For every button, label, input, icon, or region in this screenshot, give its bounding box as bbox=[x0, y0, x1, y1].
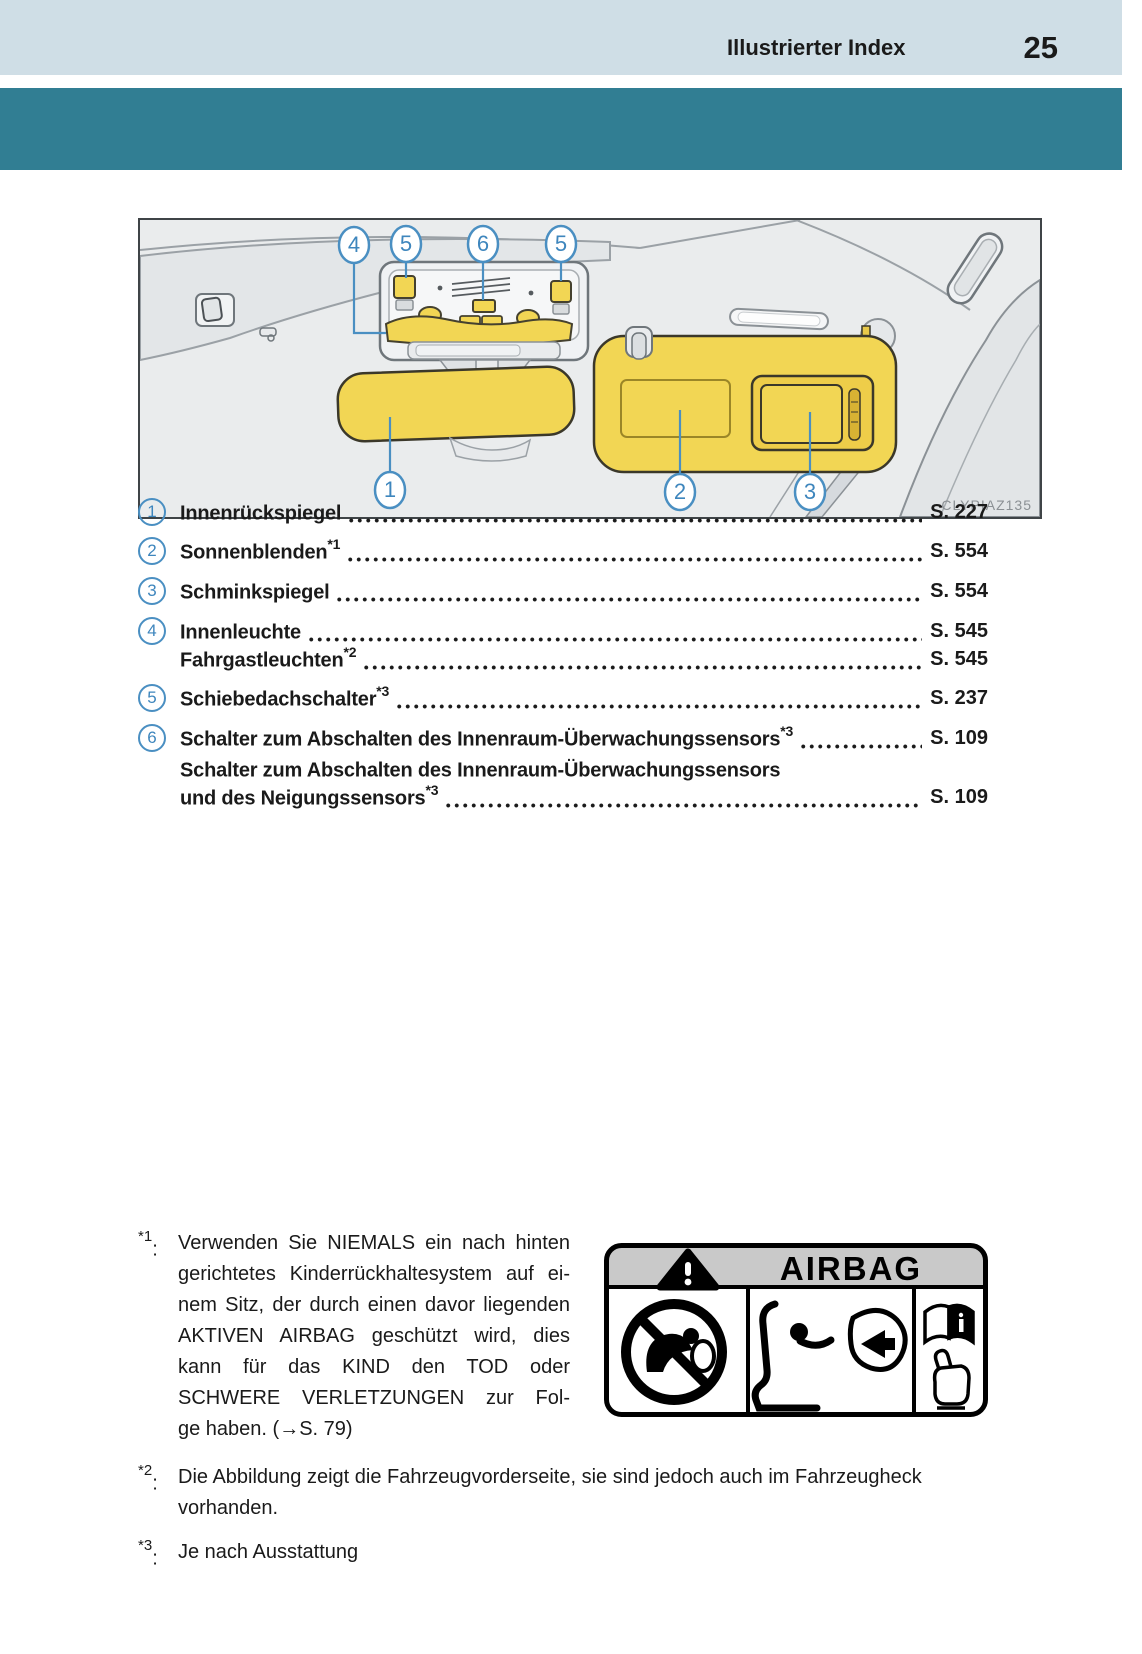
page-header: Illustrierter Index 25 bbox=[0, 0, 1122, 75]
console-dot bbox=[438, 286, 443, 291]
item-label: Fahrgastleuchten*2 bbox=[180, 646, 356, 673]
footnote-1: *1: Verwenden Sie NIEMALS ein nach hinte… bbox=[138, 1228, 1138, 1445]
switch-slot bbox=[553, 304, 569, 314]
visor-clip bbox=[626, 327, 652, 359]
callout-badge: 2 bbox=[138, 537, 166, 565]
footnotes-section: *1: Verwenden Sie NIEMALS ein nach hinte… bbox=[138, 1228, 1138, 1575]
page-ref: S. 237 bbox=[930, 687, 988, 710]
footnote-3: *3: Je nach Ausstattung bbox=[138, 1537, 1138, 1575]
footnote-ref: *1 bbox=[327, 536, 340, 552]
index-row: 3 Schminkspiegel S. 554 bbox=[138, 577, 988, 605]
footnote-1-line: Verwenden Sie NIEMALS ein nach hinten bbox=[178, 1228, 570, 1259]
leader-dots bbox=[799, 728, 922, 749]
callout-5a: 5 bbox=[400, 231, 412, 256]
vanity-cover-slider bbox=[849, 389, 860, 440]
page-ref: S. 227 bbox=[930, 501, 988, 524]
console-tray-door bbox=[416, 345, 520, 356]
index-row: 2 Sonnenblenden*1 S. 554 bbox=[138, 537, 988, 565]
page-ref: S. 545 bbox=[930, 648, 988, 671]
footnote-3-marker: *3: bbox=[138, 1537, 178, 1575]
footnote-1-marker: *1: bbox=[138, 1228, 178, 1266]
switch-slot bbox=[396, 300, 413, 310]
footnote-2-line: Die Abbildung zeigt die Fahrzeugvorderse… bbox=[178, 1462, 922, 1493]
callout-badge: 5 bbox=[138, 684, 166, 712]
index-row: 5 Schiebedachschalter*3 S. 237 bbox=[138, 684, 988, 712]
footnote-1-line: SCHWERE VERLETZUNGEN zur Fol- bbox=[178, 1383, 570, 1414]
index-row: 6 Schalter zum Abschalten des Innenraum-… bbox=[138, 724, 988, 752]
footnote-3-text: Je nach Ausstattung bbox=[178, 1537, 358, 1568]
airbag-title: AIRBAG bbox=[780, 1250, 922, 1287]
footnote-2: *2: Die Abbildung zeigt die Fahrzeugvord… bbox=[138, 1462, 1138, 1524]
page-ref: S. 109 bbox=[930, 727, 988, 750]
callout-4: 4 bbox=[348, 232, 360, 257]
leader-dots bbox=[307, 621, 922, 642]
callout-badge: 4 bbox=[138, 617, 166, 645]
manual-reference-icon bbox=[925, 1305, 973, 1408]
header-title: Illustrierter Index bbox=[727, 35, 906, 61]
footnote-1-line: ge haben. (→S. 79) bbox=[178, 1414, 570, 1445]
leader-dots bbox=[362, 649, 922, 670]
sunroof-switch-right bbox=[551, 281, 571, 302]
airbag-deployment-icon bbox=[755, 1304, 905, 1408]
footnote-1-line: kann für das KIND den TOD oder bbox=[178, 1352, 570, 1383]
interior-ceiling-figure: 4 5 6 5 1 2 3 CLYPIAZ135 bbox=[138, 218, 1042, 519]
footnote-2-marker: *2: bbox=[138, 1462, 178, 1500]
manual-page: Illustrierter Index 25 bbox=[0, 0, 1142, 1654]
sensor-off-switch bbox=[473, 300, 495, 312]
footnote-2-line: vorhanden. bbox=[178, 1493, 922, 1524]
index-row: 4 Innenleuchte S. 545 bbox=[138, 617, 988, 645]
footnote-2-text: Die Abbildung zeigt die Fahrzeugvorderse… bbox=[178, 1462, 922, 1524]
item-label: und des Neigungssensors*3 bbox=[180, 784, 438, 811]
index-row: Fahrgastleuchten*2 S. 545 bbox=[138, 645, 988, 673]
item-label: Innenleuchte bbox=[180, 618, 301, 645]
page-ref: S. 554 bbox=[930, 580, 988, 603]
item-label: Schalter zum Abschalten des Innenraum-Üb… bbox=[180, 756, 780, 783]
index-row: Schalter zum Abschalten des Innenraum-Üb… bbox=[138, 755, 988, 783]
leader-dots bbox=[346, 541, 922, 562]
callout-badge: 3 bbox=[138, 577, 166, 605]
page-ref: S. 554 bbox=[930, 540, 988, 563]
illustrated-index-list: 1 Innenrückspiegel S. 227 2 Sonnenblende… bbox=[138, 498, 988, 811]
index-row: 1 Innenrückspiegel S. 227 bbox=[138, 498, 988, 526]
item-label: Schiebedachschalter*3 bbox=[180, 685, 389, 712]
leader-dots bbox=[347, 502, 922, 523]
leader-dots bbox=[395, 688, 922, 709]
page-ref: S. 109 bbox=[930, 786, 988, 809]
footnote-ref: *3 bbox=[780, 723, 793, 739]
sunroof-switch-left bbox=[394, 276, 415, 298]
ceiling-sensor-lens bbox=[201, 297, 222, 321]
item-label: Schalter zum Abschalten des Innenraum-Üb… bbox=[180, 725, 793, 752]
header-page-number: 25 bbox=[1024, 30, 1058, 66]
index-row: und des Neigungssensors*3 S. 109 bbox=[138, 783, 988, 811]
airbag-warning-label: AIRBAG bbox=[603, 1242, 989, 1424]
rearview-mirror bbox=[337, 366, 575, 442]
footnote-1-line: gerichtetes Kinderrückhaltesystem auf ei… bbox=[178, 1259, 570, 1290]
footnote-ref: *3 bbox=[425, 782, 438, 798]
interior-ceiling-illustration: 4 5 6 5 1 2 3 CLYPIAZ135 bbox=[140, 220, 1040, 517]
callout-6: 6 bbox=[477, 231, 489, 256]
callout-badge: 1 bbox=[138, 498, 166, 526]
footnote-ref: *3 bbox=[376, 683, 389, 699]
mic-detail bbox=[260, 328, 276, 336]
footnote-1-line: nem Sitz, der durch einen davor liegende… bbox=[178, 1290, 570, 1321]
console-dot bbox=[529, 291, 534, 296]
leader-dots bbox=[335, 581, 922, 602]
callout-badge: 6 bbox=[138, 724, 166, 752]
item-label: Schminkspiegel bbox=[180, 578, 329, 605]
pointing-hand-icon bbox=[935, 1351, 969, 1408]
section-color-band bbox=[0, 88, 1122, 170]
item-label: Innenrückspiegel bbox=[180, 499, 341, 526]
airbag-warning-graphic: AIRBAG bbox=[603, 1242, 989, 1418]
footnote-3-line: Je nach Ausstattung bbox=[178, 1537, 358, 1568]
footnote-1-text: Verwenden Sie NIEMALS ein nach hinten ge… bbox=[178, 1228, 570, 1445]
callout-5b: 5 bbox=[555, 231, 567, 256]
vanity-mirror bbox=[761, 385, 842, 443]
no-rear-facing-child-seat-icon bbox=[626, 1304, 722, 1400]
footnote-1-line: AKTIVEN AIRBAG geschützt wird, dies bbox=[178, 1321, 570, 1352]
item-label: Sonnenblenden*1 bbox=[180, 538, 340, 565]
footnote-ref: *2 bbox=[344, 644, 357, 660]
page-ref: S. 545 bbox=[930, 620, 988, 643]
leader-dots bbox=[444, 787, 922, 808]
